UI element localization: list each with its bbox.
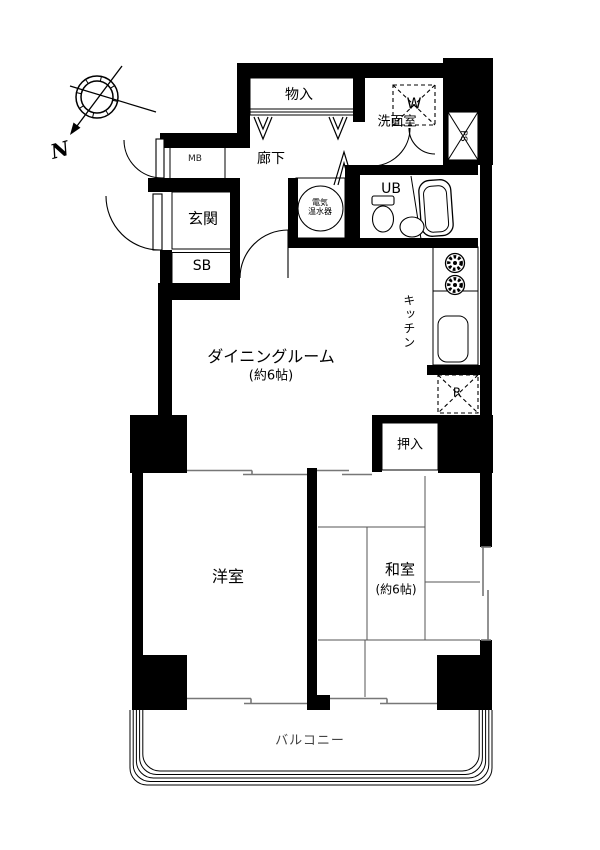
room-label-entrance: 玄関 xyxy=(188,211,218,228)
room-size-japanese-room: (約6帖) xyxy=(376,583,417,596)
corridor-door xyxy=(240,230,288,278)
floorplan-drawing xyxy=(0,0,600,850)
room-size-dining: (約6帖) xyxy=(249,370,293,385)
room-label-corridor: 廊下 xyxy=(257,152,285,168)
stove-icon xyxy=(446,254,465,295)
room-label-storage: 物入 xyxy=(285,88,313,104)
room-label-meter-box: MB xyxy=(188,154,202,164)
room-label-balcony: バルコニー xyxy=(275,735,345,750)
label-pipe-shaft: PS xyxy=(458,130,468,141)
label-washing-machine: W xyxy=(407,96,422,113)
toilet-icon xyxy=(372,196,394,232)
room-label-japanese-room: 和室 xyxy=(385,562,415,579)
entrance-door xyxy=(153,194,162,250)
room-label-dining: ダイニングルーム xyxy=(207,348,335,366)
washbasin-icon xyxy=(400,217,424,237)
washroom-door xyxy=(372,128,410,166)
room-label-unit-bath: UB xyxy=(381,182,401,198)
room-label-shoe-box: SB xyxy=(193,259,212,275)
room-label-closet: 押入 xyxy=(397,439,423,454)
room-label-kitchen: キッチン xyxy=(401,294,414,350)
casework-outlines xyxy=(170,78,478,470)
floorplan: N 物入 廊下 MB 玄関 SB 洗面室 W PS UB 電気温水器 キッチン … xyxy=(0,0,600,850)
room-label-washroom: 洗面室 xyxy=(377,116,416,131)
label-refrigerator: R xyxy=(453,386,461,399)
label-water-heater: 電気温水器 xyxy=(308,199,332,217)
compass-icon xyxy=(70,66,156,135)
room-label-western-room: 洋室 xyxy=(212,568,244,586)
meter-box-door xyxy=(156,139,164,178)
sink-icon xyxy=(438,316,468,362)
